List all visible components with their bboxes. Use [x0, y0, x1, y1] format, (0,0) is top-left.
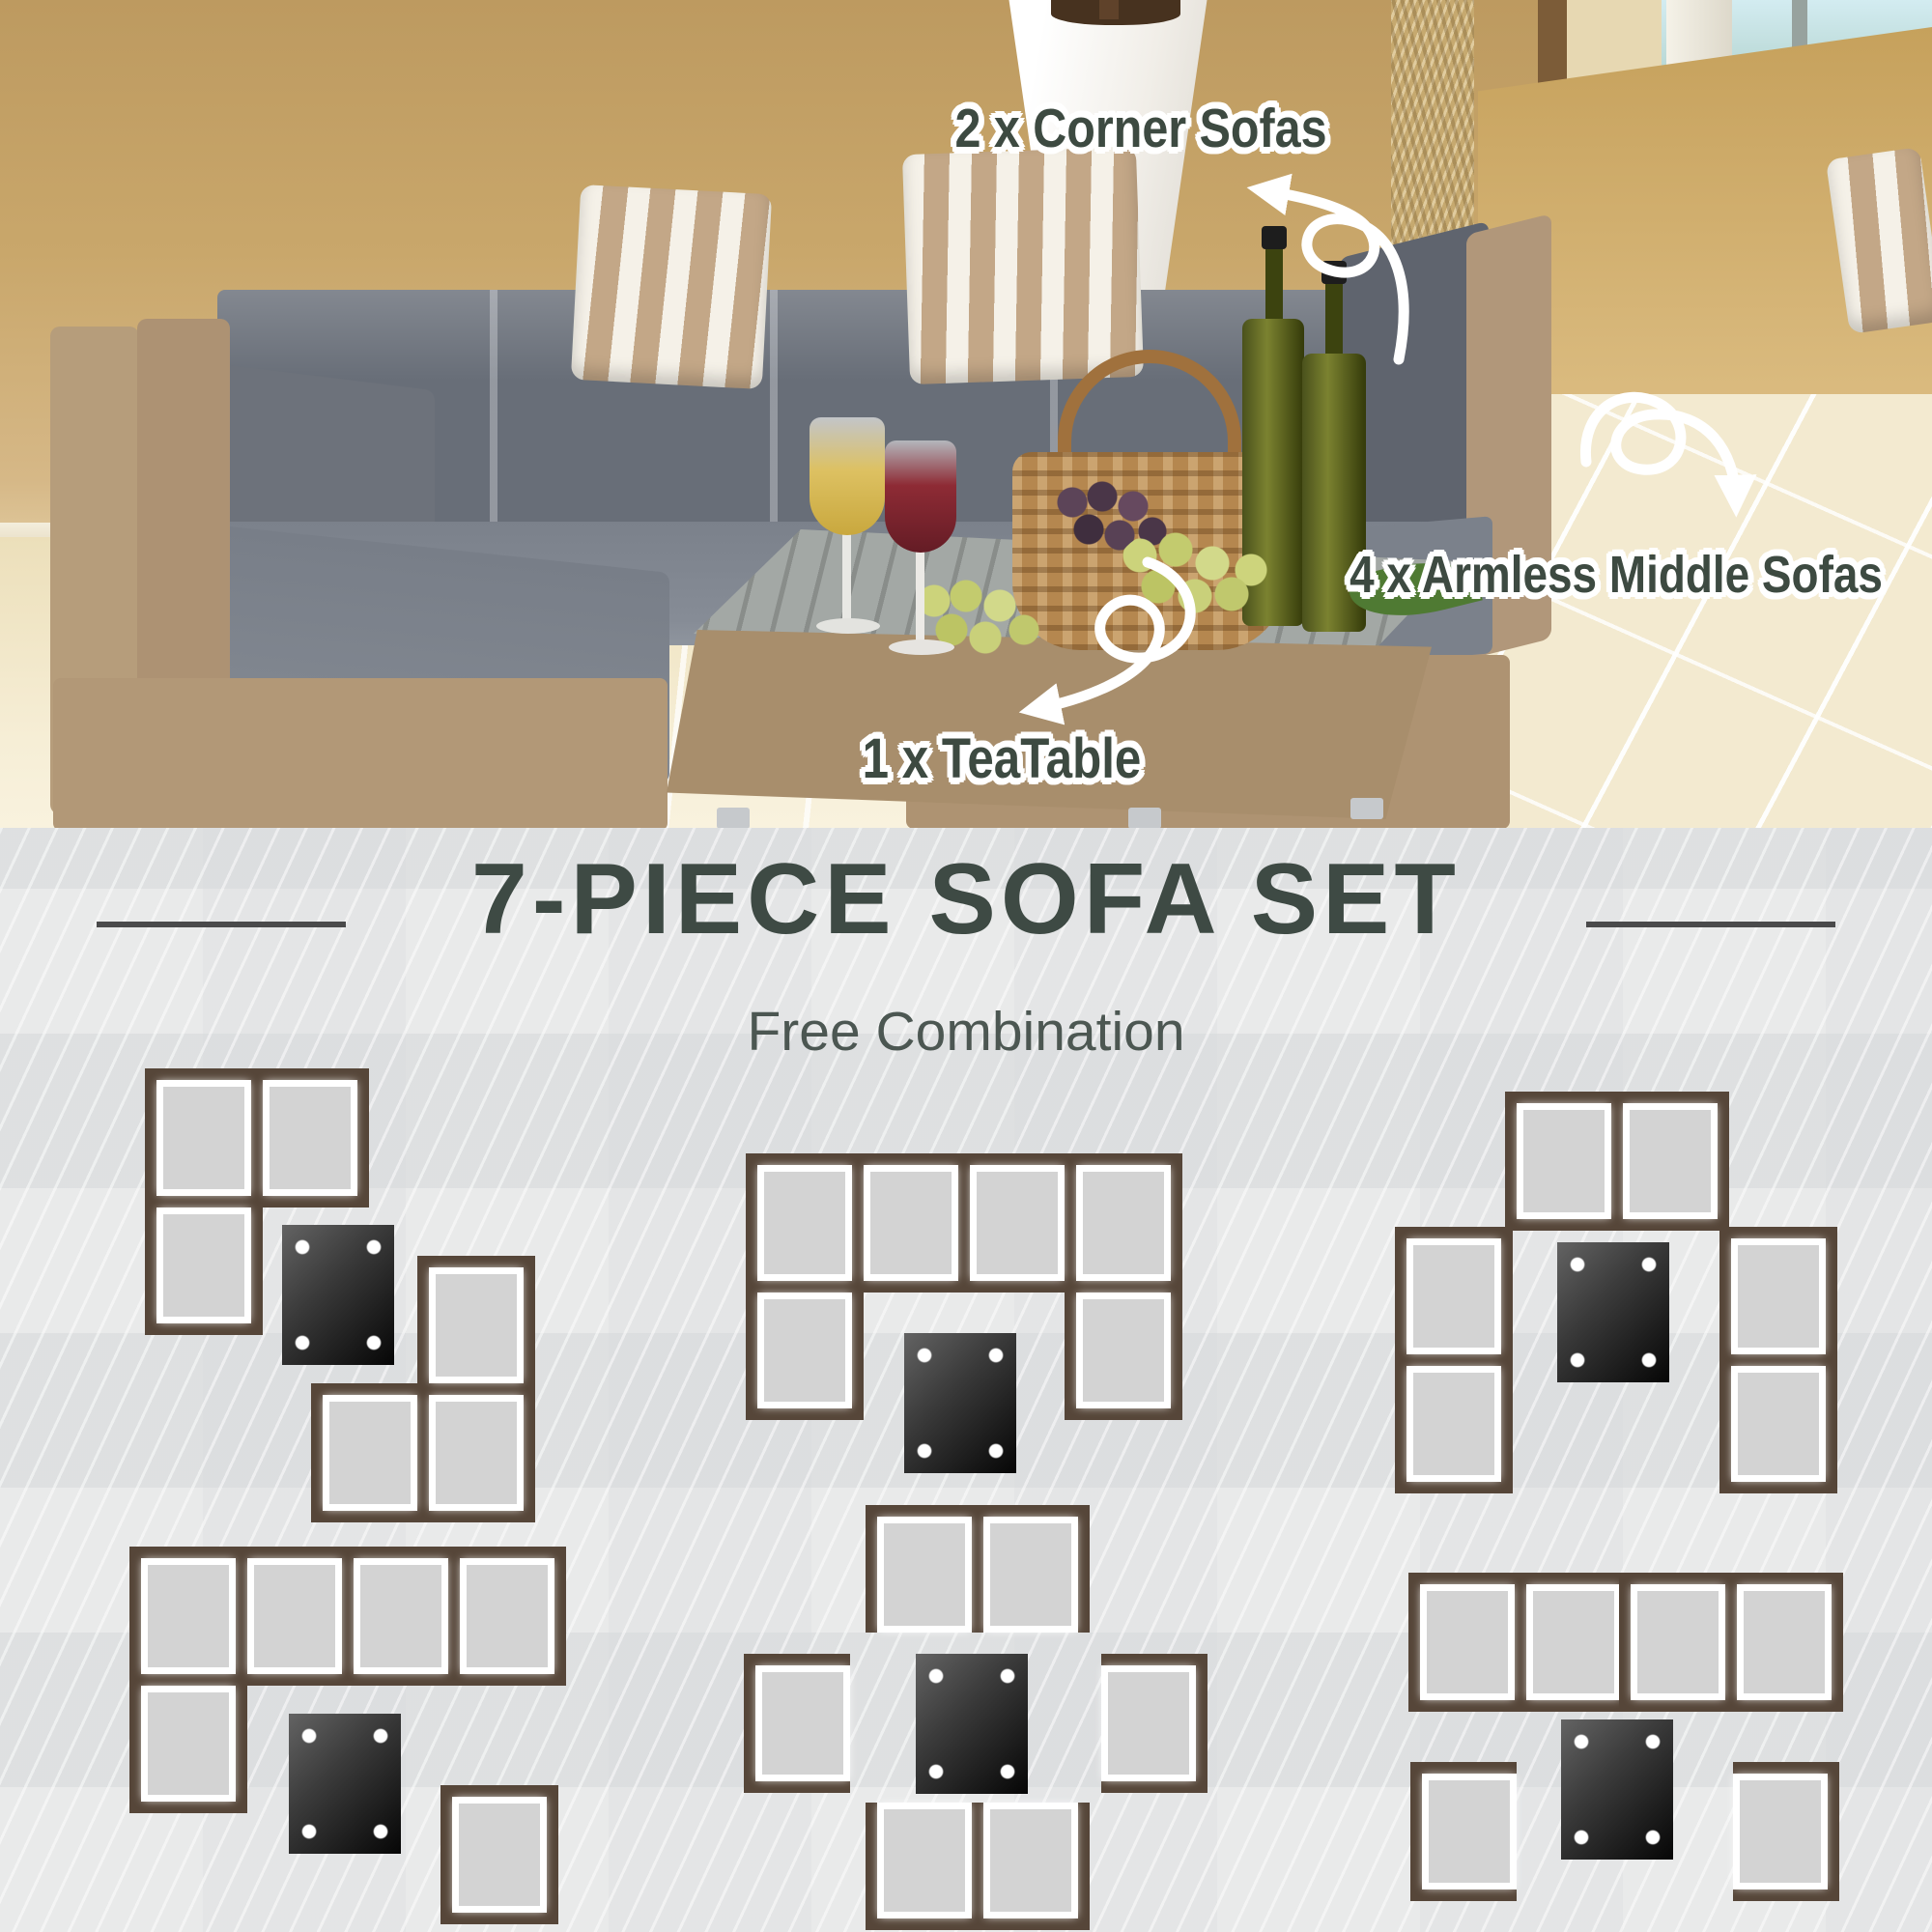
tea-table-label: 1 x TeaTable — [863, 726, 1142, 791]
section-subtitle: Free Combination — [0, 1000, 1932, 1064]
combination-section: 7-PIECE SOFA SET Free Combination — [0, 828, 1932, 1932]
curved-arrow-icon — [1036, 562, 1190, 709]
curved-arrow-icon — [1585, 397, 1736, 500]
corner-sofas-label: 2 x Corner Sofas — [954, 97, 1326, 160]
curved-arrow-icon — [1264, 190, 1404, 359]
armless-sofas-label: 4 x Armless Middle Sofas — [1350, 545, 1883, 605]
section-title: 7-PIECE SOFA SET — [0, 842, 1932, 957]
wicker-texture-background — [0, 828, 1932, 1932]
product-infographic: 2 x Corner Sofas 4 x Armless Middle Sofa… — [0, 0, 1932, 1932]
product-photo: 2 x Corner Sofas 4 x Armless Middle Sofa… — [0, 0, 1932, 828]
